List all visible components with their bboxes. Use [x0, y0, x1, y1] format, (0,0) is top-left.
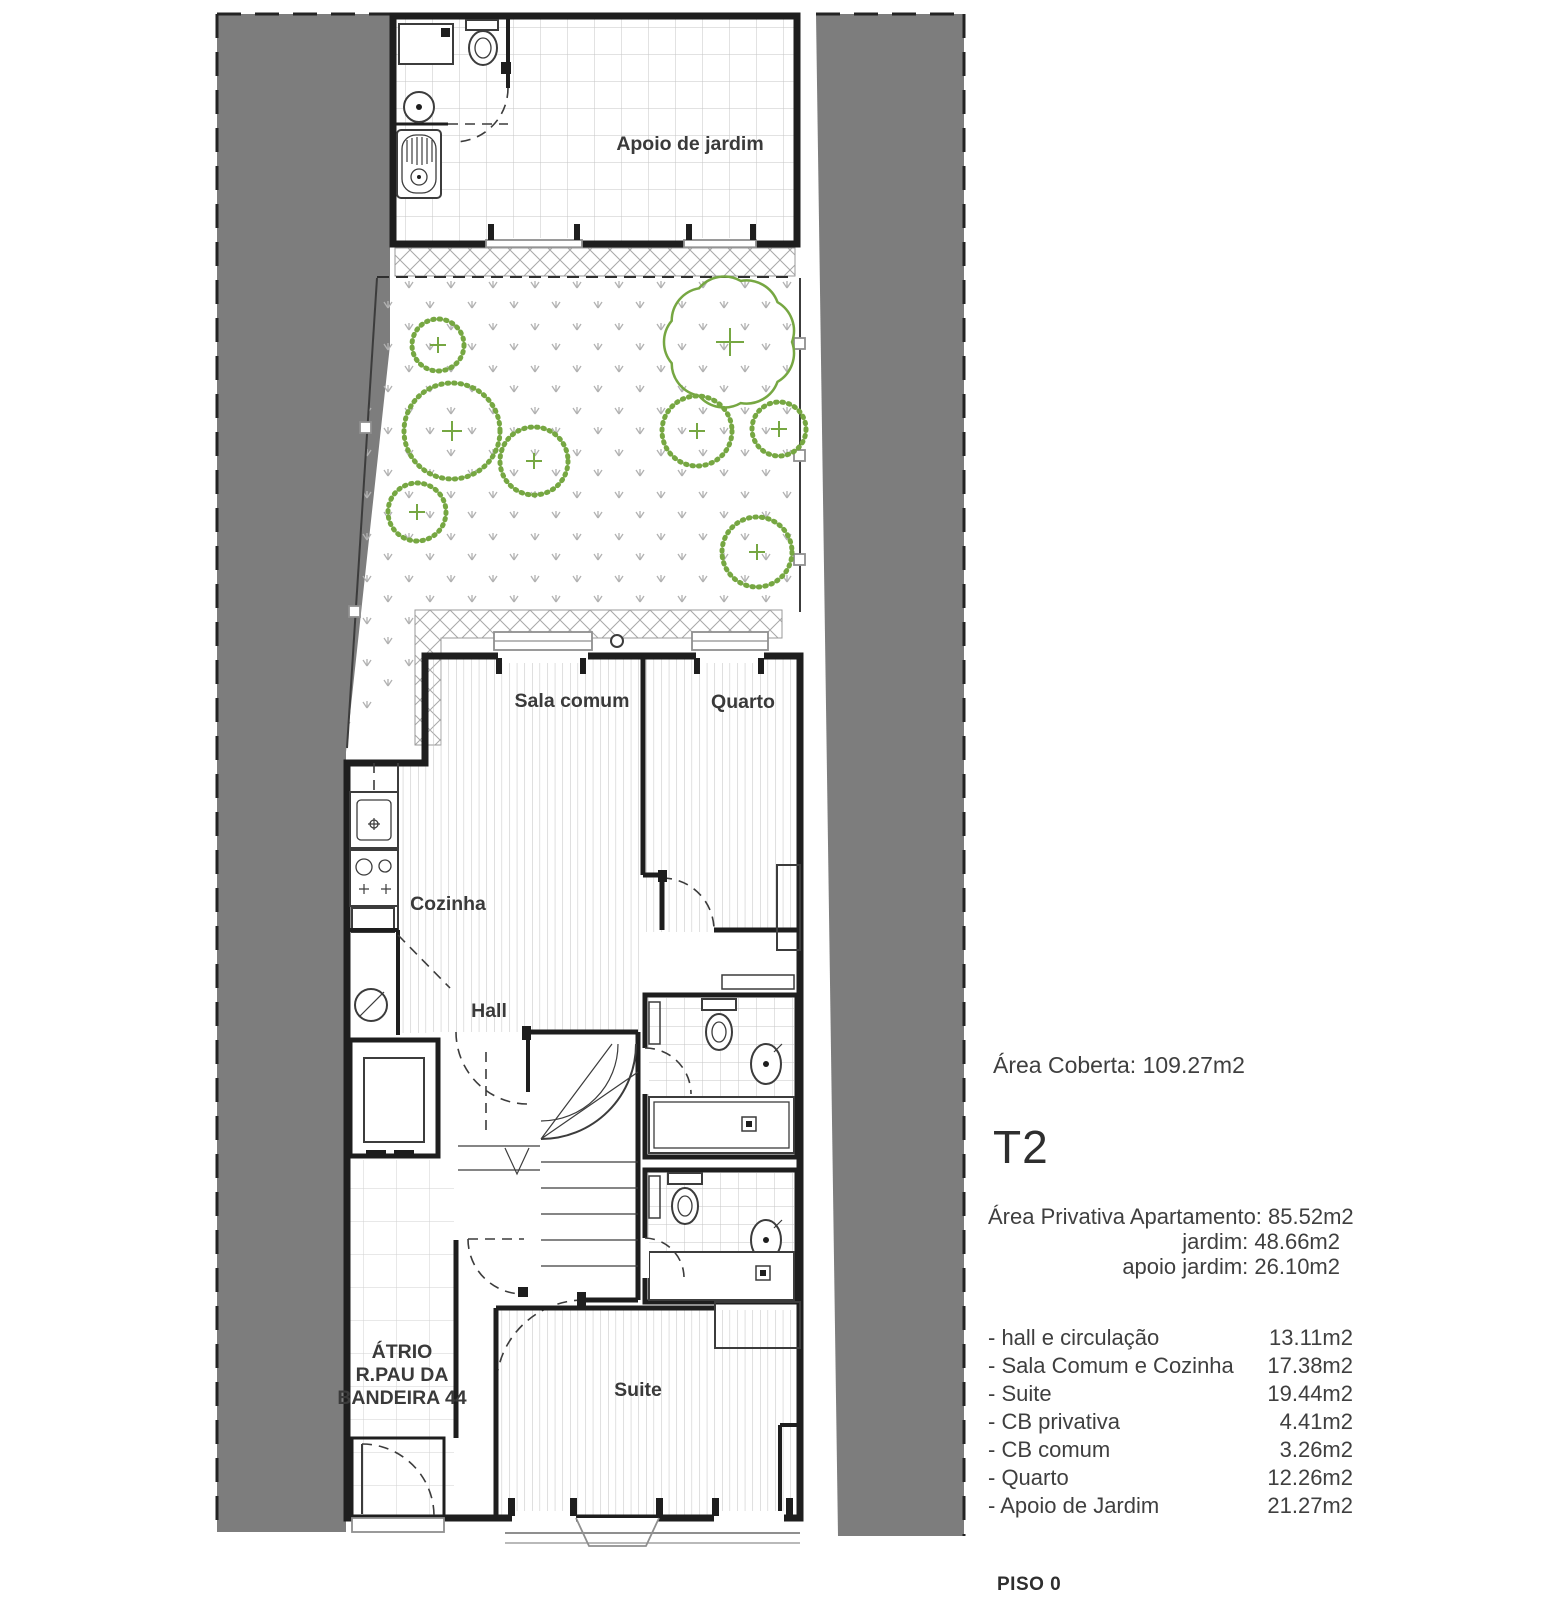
label-atrio-line1: ÁTRIO — [372, 1340, 433, 1363]
label-hall: Hall — [471, 1000, 507, 1022]
private-area-line: jardim: 48.66m2 — [988, 1229, 1340, 1254]
washbasin-fixture — [404, 92, 434, 122]
floor-plan-sheet: Apoio de jardim — [0, 0, 1556, 1609]
paving-band-top — [395, 248, 795, 276]
laundry-appliance — [355, 989, 387, 1021]
label-sala-comum: Sala comum — [515, 690, 630, 712]
bathtub-fixture — [649, 1252, 794, 1300]
private-area-line: Área Privativa Apartamento: 85.52m2 — [988, 1204, 1340, 1229]
room-areas-list: - hall e circulação 13.11m2 - Sala Comum… — [988, 1324, 1353, 1520]
bathtub-fixture — [397, 130, 441, 198]
room-label: - Apoio de Jardim — [988, 1492, 1159, 1520]
room-label: - hall e circulação — [988, 1324, 1159, 1352]
list-item: - hall e circulação 13.11m2 — [988, 1324, 1353, 1352]
toilet-fixture — [466, 20, 498, 65]
room-label: - CB comum — [988, 1436, 1110, 1464]
floor-atrio — [350, 1160, 454, 1518]
label-quarto: Quarto — [711, 691, 775, 713]
list-item: - Quarto 12.26m2 — [988, 1464, 1353, 1492]
kitchen-sink-fixture — [350, 792, 398, 848]
unit-type-title: T2 — [993, 1120, 1049, 1174]
room-value: 3.26m2 — [1280, 1436, 1353, 1464]
floor-sala-comum — [428, 656, 640, 1032]
label-cozinha: Cozinha — [410, 893, 486, 915]
room-label: - Quarto — [988, 1464, 1069, 1492]
neighbor-building-right — [816, 14, 964, 1536]
list-item: - Suite 19.44m2 — [988, 1380, 1353, 1408]
list-item: - CB comum 3.26m2 — [988, 1436, 1353, 1464]
room-value: 4.41m2 — [1280, 1408, 1353, 1436]
room-label: - Suite — [988, 1380, 1052, 1408]
room-value: 17.38m2 — [1267, 1352, 1353, 1380]
room-apoio-de-jardim: Apoio de jardim — [393, 16, 797, 254]
room-label: - CB privativa — [988, 1408, 1120, 1436]
private-areas-block: Área Privativa Apartamento: 85.52m2 jard… — [988, 1204, 1340, 1279]
room-value: 13.11m2 — [1269, 1324, 1353, 1352]
floor-suite — [496, 1310, 797, 1515]
room-value: 12.26m2 — [1267, 1464, 1353, 1492]
list-item: - Apoio de Jardim 21.27m2 — [988, 1492, 1353, 1520]
label-atrio-line3: BANDEIRA 44 — [337, 1387, 466, 1409]
washbasin-fixture — [751, 1044, 782, 1084]
shower-fixture — [649, 1097, 794, 1153]
private-area-line: apoio jardim: 26.10m2 — [988, 1254, 1340, 1279]
covered-area-text: Área Coberta: 109.27m2 — [993, 1052, 1245, 1079]
floor-level-label: PISO 0 — [997, 1574, 1061, 1596]
stove-fixture — [350, 850, 398, 906]
room-label: - Sala Comum e Cozinha — [988, 1352, 1234, 1380]
label-apoio-de-jardim: Apoio de jardim — [616, 133, 763, 155]
label-atrio-line2: R.PAU DA — [356, 1364, 449, 1386]
room-value: 19.44m2 — [1267, 1380, 1353, 1408]
label-suite: Suite — [614, 1379, 662, 1401]
elevator — [350, 1040, 438, 1158]
list-item: - CB privativa 4.41m2 — [988, 1408, 1353, 1436]
room-value: 21.27m2 — [1267, 1492, 1353, 1520]
list-item: - Sala Comum e Cozinha 17.38m2 — [988, 1352, 1353, 1380]
